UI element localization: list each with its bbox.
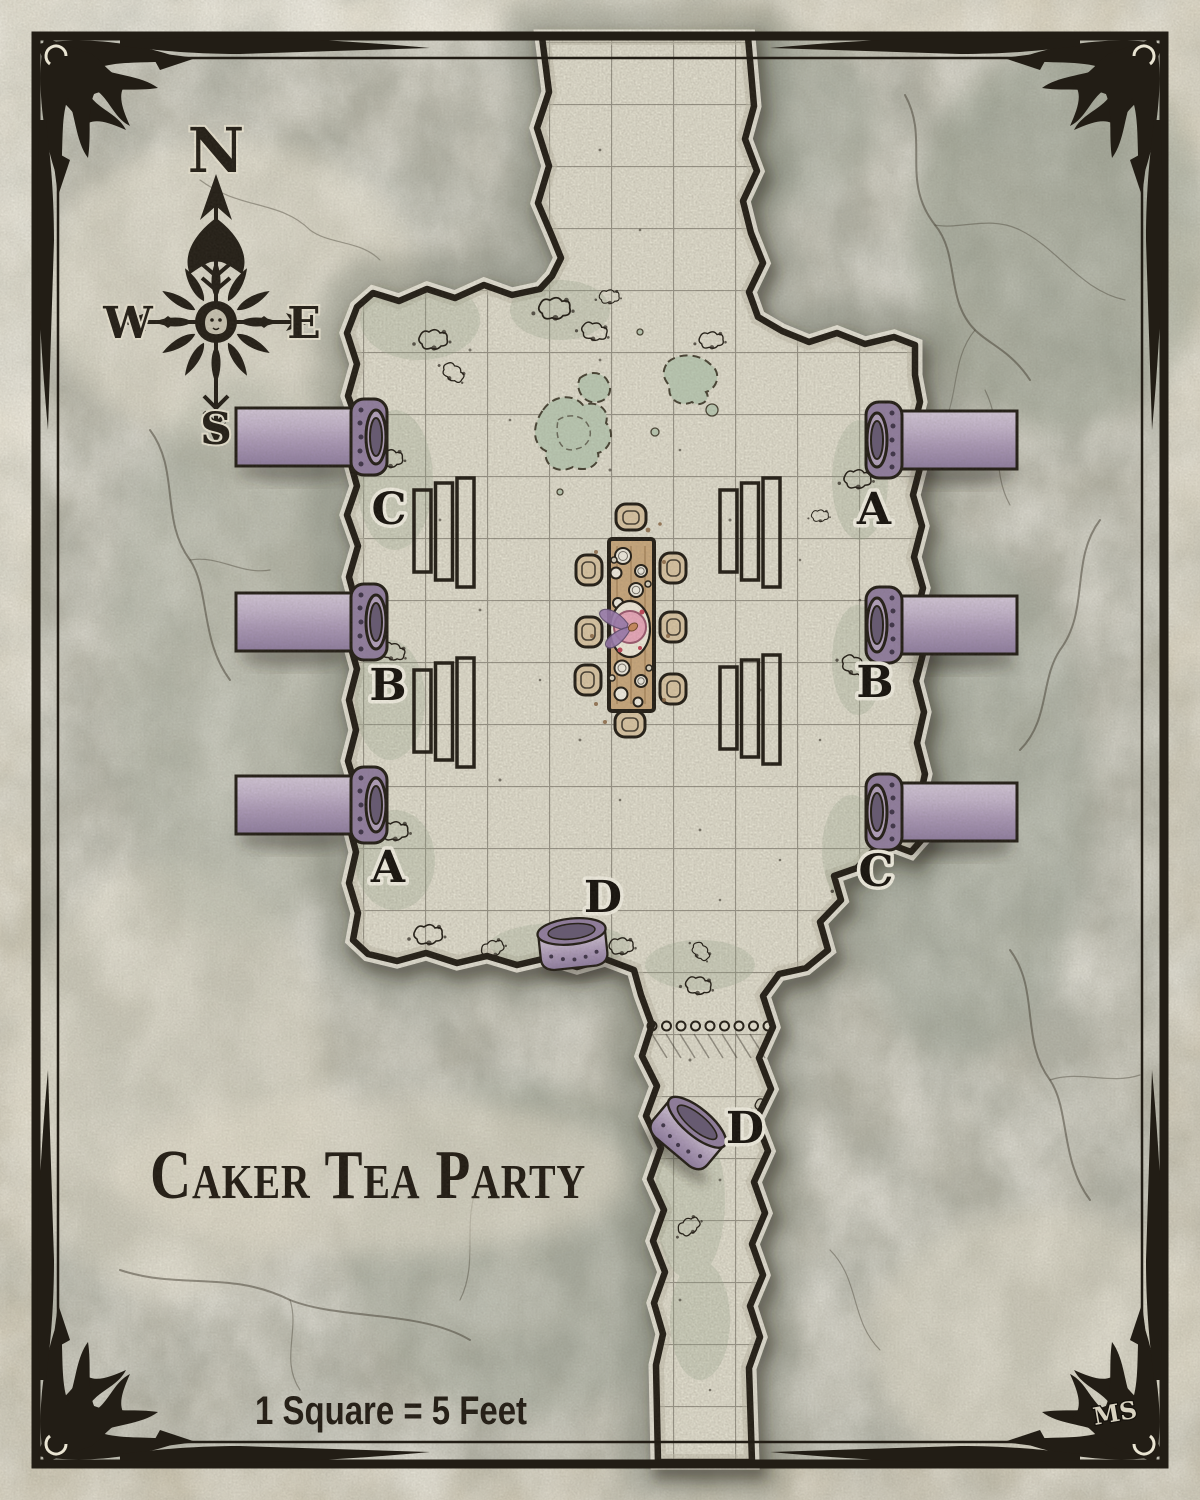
battle-map: C B A A B C D D N W E S	[0, 0, 1200, 1500]
paper-grain-overlay	[40, 40, 1160, 1460]
battle-map-svg: C B A A B C D D N W E S	[0, 0, 1200, 1500]
